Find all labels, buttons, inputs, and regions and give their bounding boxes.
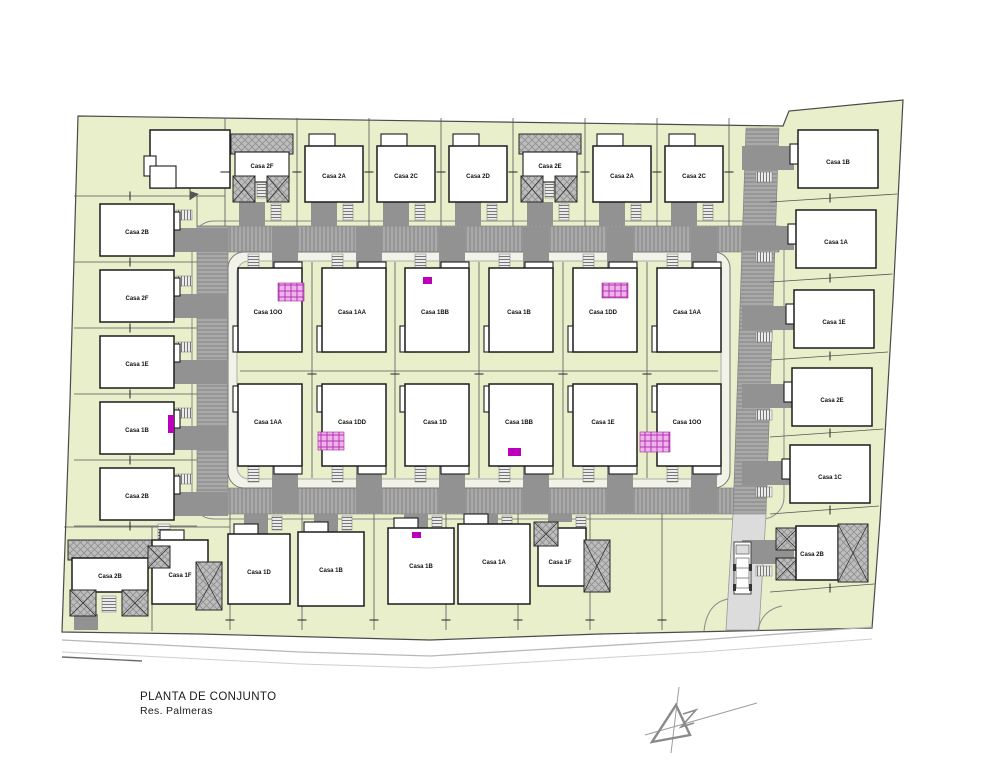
house-label: Casa 1D: [247, 570, 271, 576]
house-label: Casa 1AA: [338, 310, 367, 316]
house-inner-top-5: Casa 1AA: [652, 262, 721, 352]
house-inner-bottom-5: Casa 1OO: [652, 384, 721, 474]
house-label: Casa 2C: [682, 174, 706, 180]
magenta-marker: [168, 415, 174, 433]
house-label: Casa 2A: [610, 174, 634, 180]
house-inner-top-3: Casa 1B: [484, 262, 553, 352]
stair-steps: [332, 466, 343, 482]
driveway: [742, 226, 794, 250]
stair-steps: [559, 204, 569, 220]
house-bottom-row-0: Casa 1D: [228, 524, 290, 604]
house-inner-bottom-4: Casa 1E: [568, 384, 637, 474]
house-label: Casa 2B: [125, 494, 149, 500]
house-bottom-row-3: Casa 1A: [458, 514, 530, 604]
stair-steps: [499, 466, 510, 482]
stair-steps: [271, 204, 281, 220]
house-label: Casa 1F: [548, 560, 571, 566]
pink-stair: [602, 283, 628, 298]
stair-steps: [102, 596, 116, 612]
driveway: [311, 202, 337, 226]
house-right-col-4: Casa 1C: [782, 445, 870, 503]
house-label: Casa 1C: [818, 475, 842, 481]
house-label: Casa 2F: [125, 296, 148, 302]
stair-steps: [756, 172, 772, 182]
house-inner-top-2: Casa 1BB: [400, 262, 469, 352]
driveway: [174, 228, 228, 252]
stair-steps: [667, 466, 678, 482]
stair-steps: [342, 516, 352, 530]
house-label: Casa 1B: [507, 310, 531, 316]
stair-steps: [703, 204, 713, 220]
driveway: [548, 514, 572, 522]
stair-steps: [415, 204, 425, 220]
house-label: Casa 1F: [168, 573, 191, 579]
house-label: Casa 2D: [466, 174, 490, 180]
driveway: [599, 202, 625, 226]
house-label: Casa 1E: [591, 420, 614, 426]
house-right-col-0: Casa 1B: [790, 130, 878, 188]
truck-icon: [733, 542, 752, 594]
house-left-col-0: Casa 2B: [100, 204, 180, 256]
driveway: [174, 294, 228, 318]
drawing-subtitle: Res. Palmeras: [140, 705, 213, 717]
stair-steps: [343, 204, 353, 220]
house-label: Casa 1B: [319, 568, 343, 574]
house-left-col-2: Casa 1E: [100, 336, 180, 388]
driveway: [174, 360, 228, 384]
driveway: [742, 146, 794, 170]
house-label: Casa 2B: [800, 552, 824, 558]
house-label: Casa 1BB: [421, 310, 450, 316]
house-right-col-1: Casa 1A: [788, 210, 876, 268]
driveway: [527, 202, 553, 226]
stair-steps: [756, 410, 772, 420]
house-label: Casa 1AA: [673, 310, 702, 316]
driveway: [174, 492, 228, 516]
driveway: [671, 202, 697, 226]
house-label: Casa 1D: [423, 420, 447, 426]
house-inner-top-4: Casa 1DD: [568, 262, 637, 352]
pink-stair: [318, 432, 344, 450]
house-right-col-2: Casa 1E: [786, 290, 874, 348]
house-label: Casa 1OO: [254, 310, 283, 316]
driveway: [174, 426, 228, 450]
house-bottom-row-2: Casa 1B: [388, 518, 454, 604]
house-label: Casa 1AA: [254, 420, 283, 426]
house-label: Casa 1A: [824, 240, 848, 246]
stair-steps: [583, 466, 594, 482]
house-inner-bottom-0: Casa 1AA: [233, 384, 302, 474]
house-label: Casa 2C: [394, 174, 418, 180]
driveway: [455, 202, 481, 226]
house-label: Casa 2E: [538, 164, 561, 170]
stair-steps: [248, 466, 259, 482]
house-label: Casa 1DD: [589, 310, 618, 316]
house-label: Casa 2A: [322, 174, 346, 180]
house-label: Casa 1BB: [505, 420, 534, 426]
house-inner-bottom-3: Casa 1BB: [484, 384, 553, 474]
stair-steps: [756, 332, 772, 342]
house-label: Casa 1B: [125, 428, 149, 434]
pink-stair: [640, 432, 670, 452]
stair-steps: [272, 516, 282, 530]
house-left-col-4: Casa 2B: [100, 468, 180, 520]
magenta-marker: [412, 532, 421, 538]
house-left-col-1: Casa 2F: [100, 270, 180, 322]
house-label: Casa 1A: [482, 560, 506, 566]
house-label: Casa 2B: [125, 230, 149, 236]
pink-stair: [278, 283, 304, 301]
stair-steps: [487, 204, 497, 220]
house-inner-bottom-1: Casa 1DD: [317, 384, 386, 474]
house-right-col-3: Casa 2E: [784, 368, 872, 426]
house-label: Casa 1B: [826, 160, 850, 166]
house-label: Casa 1OO: [673, 420, 702, 426]
house-inner-top-0: Casa 1OO: [233, 262, 302, 352]
stair-steps: [631, 204, 641, 220]
house-inner-top-1: Casa 1AA: [317, 262, 386, 352]
house-label: Casa 1DD: [338, 420, 367, 426]
driveway: [383, 202, 409, 226]
house-inner-bottom-2: Casa 1D: [400, 384, 469, 474]
stair-steps: [415, 466, 426, 482]
house-bottom-row-1: Casa 1B: [298, 522, 364, 606]
magenta-marker: [423, 277, 432, 284]
house-label: Casa 2B: [98, 574, 122, 580]
stair-steps: [756, 252, 772, 262]
magenta-marker: [508, 448, 521, 456]
stair-steps: [756, 487, 772, 497]
stair-steps: [756, 566, 772, 576]
house-label: Casa 2E: [820, 398, 843, 404]
stair-steps: [257, 180, 266, 198]
driveway: [239, 202, 265, 226]
stair-steps: [545, 180, 554, 198]
house-label: Casa 1E: [822, 320, 845, 326]
site-plan-drawing: Casa 2FCasa 2ACasa 2CCasa 2DCasa 2ECasa …: [0, 0, 1000, 772]
house-label: Casa 1E: [125, 362, 148, 368]
house-label: Casa 2F: [250, 164, 273, 170]
house-label: Casa 1B: [409, 564, 433, 570]
north-arrow-icon: [645, 687, 757, 753]
drawing-title: PLANTA DE CONJUNTO: [140, 691, 277, 703]
